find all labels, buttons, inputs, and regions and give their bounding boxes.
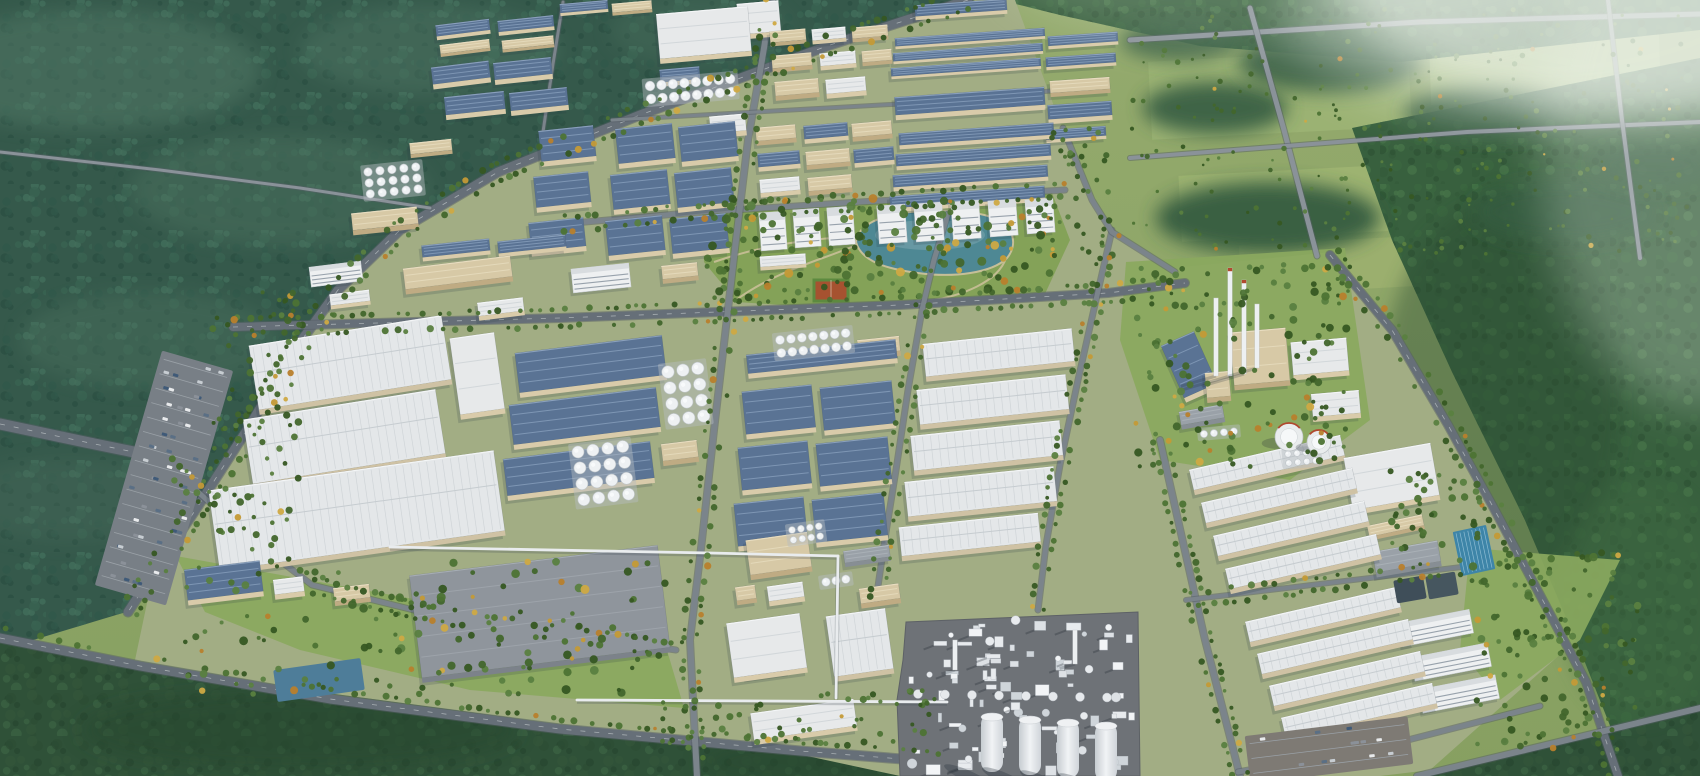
- storage-tanks: [360, 159, 426, 202]
- factory-building: [658, 262, 699, 287]
- office-building: [985, 199, 1019, 240]
- factory-building: [823, 608, 895, 685]
- factory-building: [735, 440, 813, 498]
- storage-tanks: [568, 436, 639, 509]
- factory-building: [817, 380, 897, 439]
- factory-building: [858, 49, 892, 70]
- factory-building: [723, 613, 808, 686]
- factory-building: [653, 6, 752, 67]
- scene-canvas: [0, 0, 1700, 776]
- storage-tanks: [658, 358, 714, 430]
- factory-building: [270, 576, 306, 603]
- industrial-park-aerial-render: [0, 0, 1700, 776]
- factory-building: [671, 167, 735, 216]
- factory-building: [1287, 338, 1349, 384]
- factory-building: [754, 150, 801, 175]
- factory-building: [757, 253, 807, 273]
- factory-building: [739, 384, 817, 442]
- factory-building: [607, 169, 671, 218]
- factory-building: [822, 76, 867, 102]
- factory-building: [658, 440, 700, 470]
- factory-building: [848, 120, 893, 145]
- factory-building: [800, 122, 849, 147]
- factory-building: [530, 171, 592, 216]
- factory-building: [732, 585, 758, 609]
- factory-building: [771, 78, 820, 104]
- factory-building: [802, 148, 851, 173]
- factory-building: [850, 146, 895, 171]
- factory-building: [535, 125, 597, 170]
- factory-building: [816, 50, 857, 73]
- factory-building: [813, 436, 893, 495]
- factory-building: [675, 121, 739, 170]
- factory-building: [804, 174, 853, 199]
- factory-building: [1044, 101, 1112, 128]
